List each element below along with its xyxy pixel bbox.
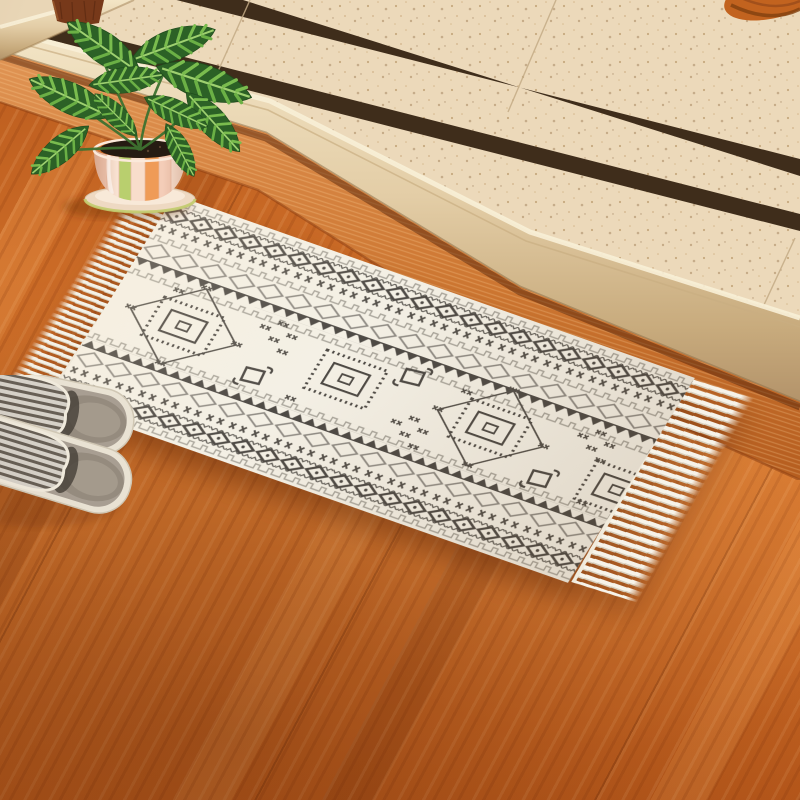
slippers	[0, 375, 155, 545]
room-photo	[0, 0, 800, 800]
potted-plant	[8, 0, 258, 230]
